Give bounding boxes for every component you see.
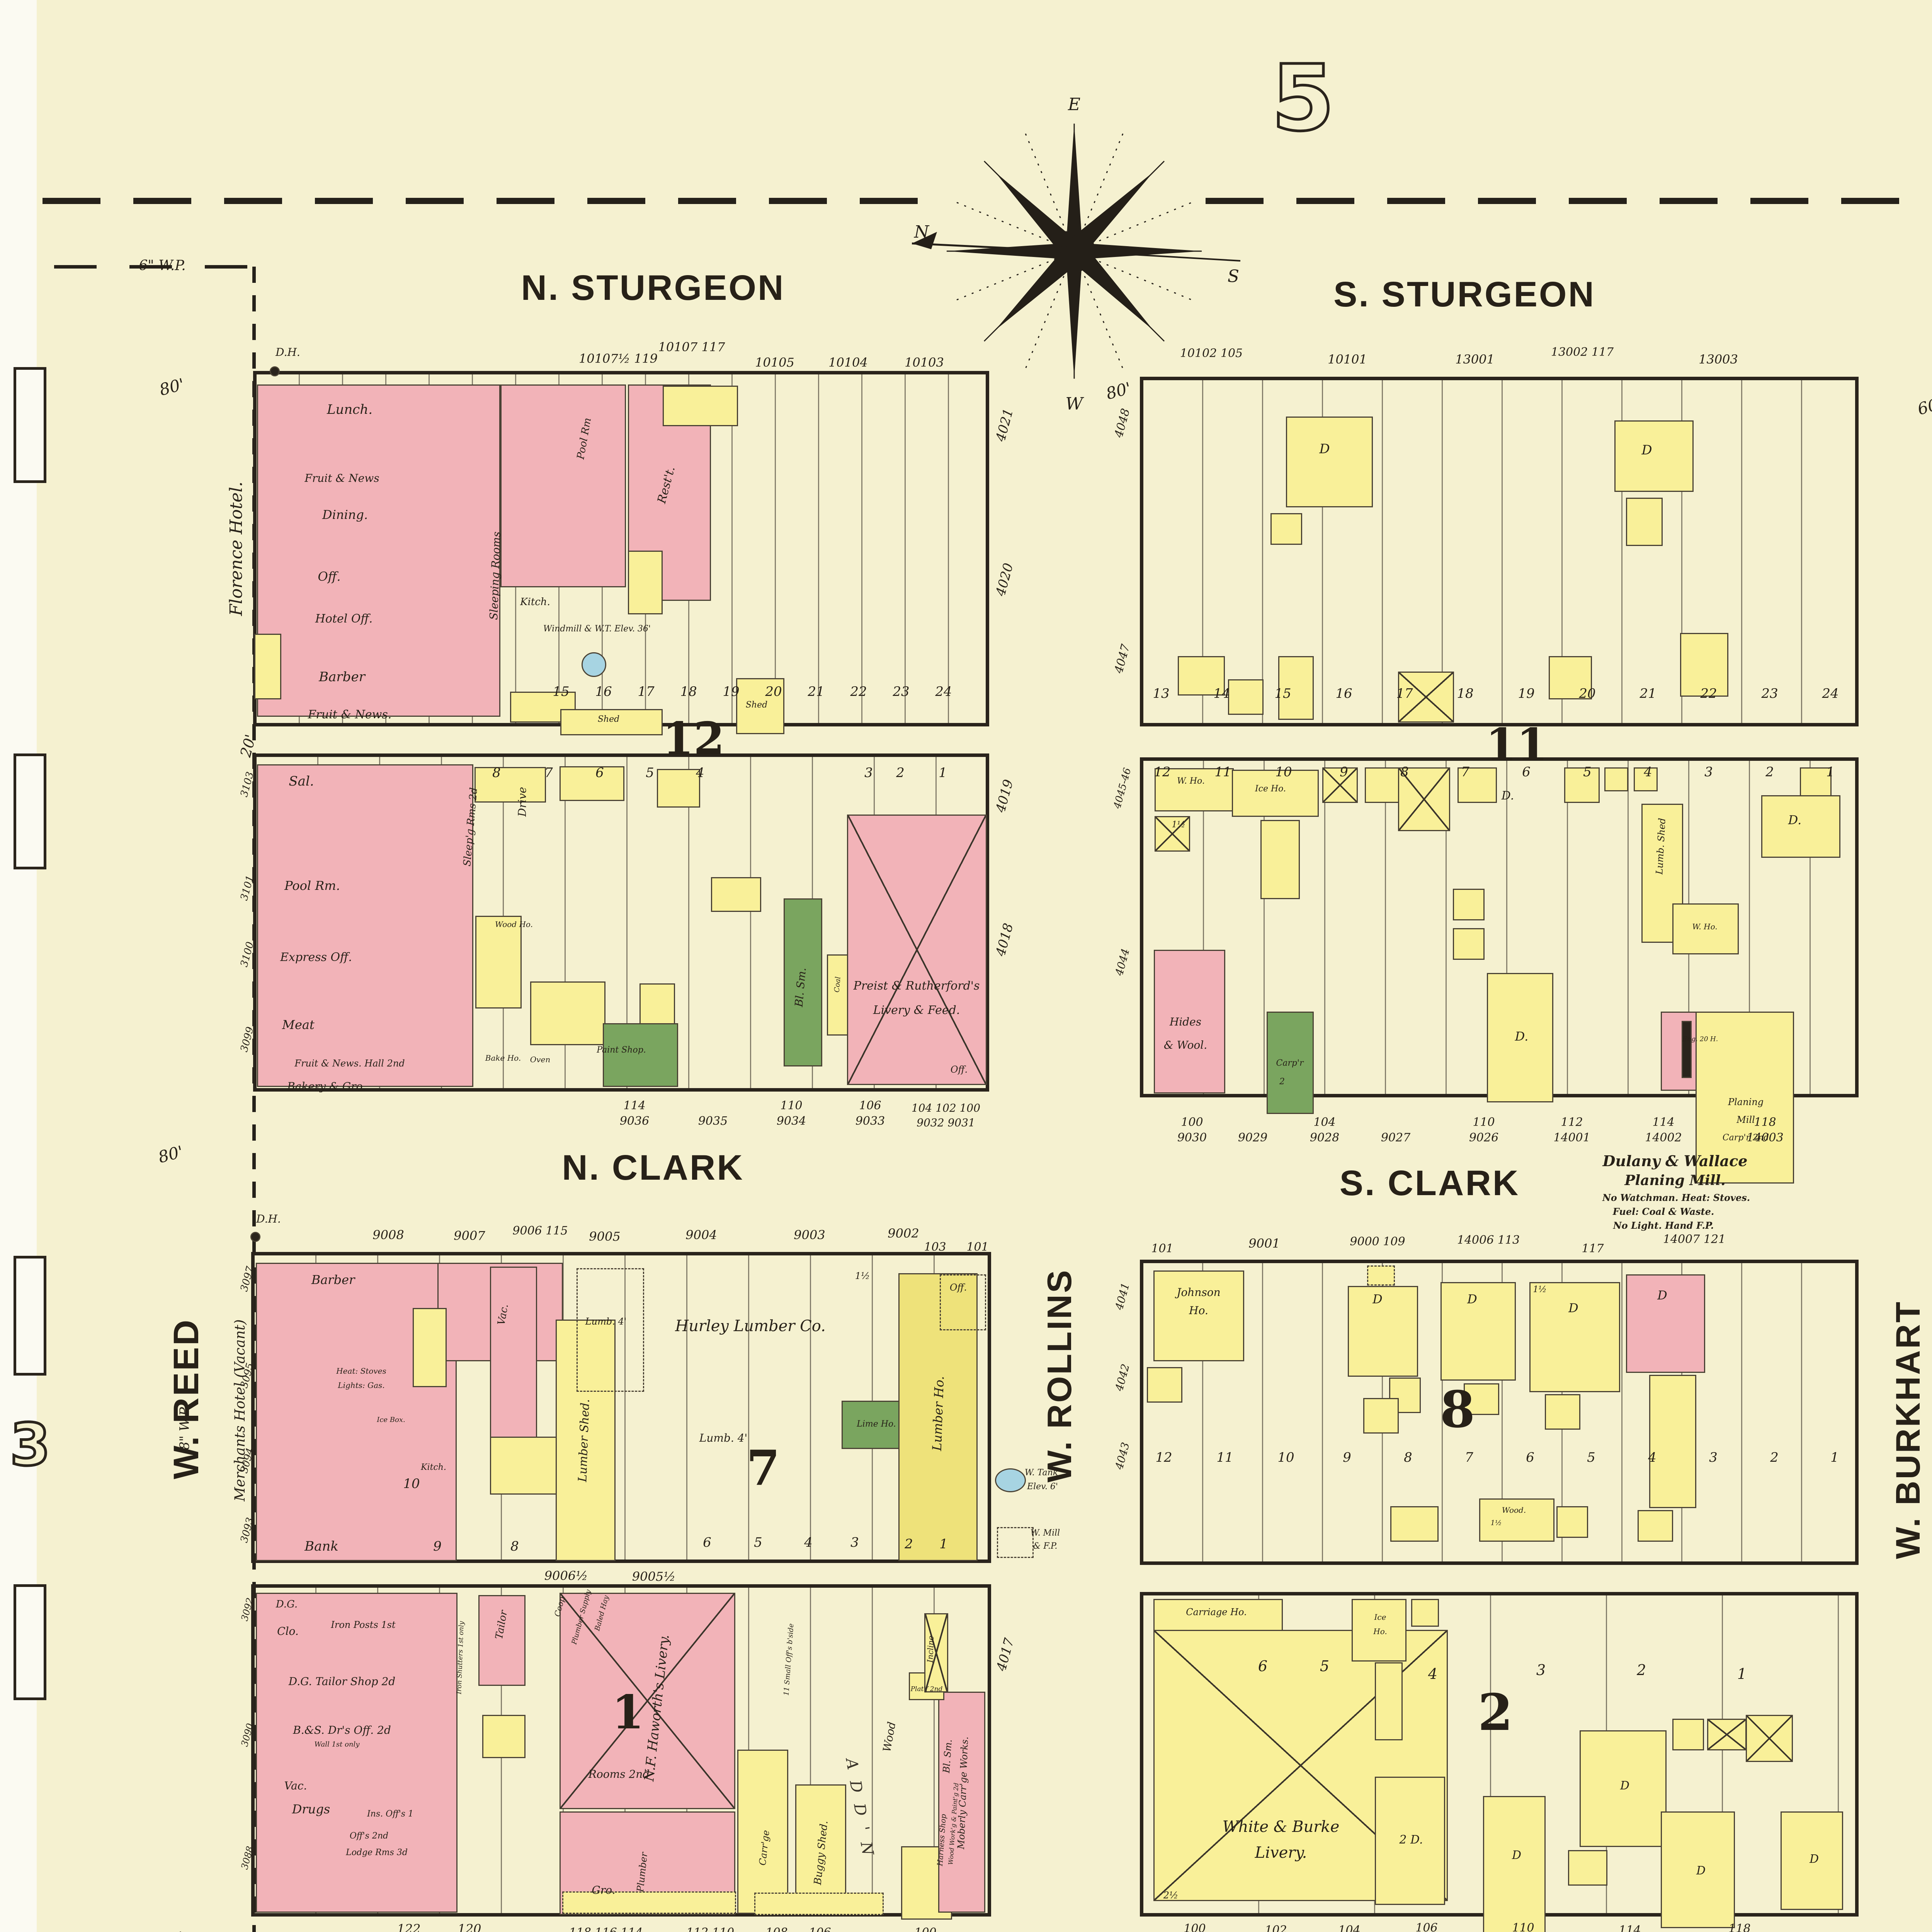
adjacent-block-stub (14, 1256, 46, 1376)
building-label: White & Burke (1223, 1819, 1340, 1835)
building-label: Barber (311, 1274, 355, 1286)
building-label: D. (1515, 1030, 1529, 1043)
street-label: S. CLARK (1340, 1165, 1520, 1201)
address-label: 2 (1637, 1663, 1646, 1677)
block-number: 12 (663, 717, 724, 761)
address-label: 13002 117 (1551, 347, 1614, 358)
building-footprint (1626, 498, 1663, 546)
building-label: 80' (158, 1929, 186, 1932)
address-label: 1 (939, 1537, 948, 1551)
address-label: 1 (1826, 765, 1835, 779)
address-label: 9003 (794, 1229, 825, 1241)
building-label: Lumb. 4' (585, 1317, 627, 1326)
building-label: D (1512, 1850, 1521, 1861)
address-label: 10102 105 (1180, 348, 1243, 359)
address-label: 100 (1184, 1923, 1206, 1932)
address-label: 9034 (777, 1116, 806, 1127)
building-footprint (1367, 1265, 1395, 1286)
building-footprint (256, 1263, 457, 1561)
building-label: Lodge Rms 3d (346, 1849, 408, 1857)
building-footprint (1270, 513, 1302, 545)
building-footprint (562, 1891, 736, 1914)
block-number: 7 (747, 1444, 780, 1493)
map-note: No Watchman. Heat: Stoves. (1602, 1193, 1750, 1202)
address-label: 9007 (454, 1230, 485, 1242)
building-label: Sal. (289, 775, 314, 788)
address-label: 5 (1587, 1451, 1595, 1464)
address-label: 23 (893, 685, 909, 698)
svg-text:S: S (1228, 267, 1239, 286)
address-label: 106 (1415, 1922, 1437, 1932)
address-label: 4018 (994, 922, 1015, 957)
address-label: 2 (1770, 1451, 1779, 1464)
building-footprint (1375, 1662, 1403, 1740)
address-label: 14001 (1553, 1132, 1590, 1144)
address-label: 4017 (995, 1637, 1016, 1672)
building-label: Heat: Stoves (336, 1367, 386, 1375)
building-label: Bank (304, 1540, 338, 1553)
building-footprint (478, 1595, 526, 1686)
address-label: 18 (680, 685, 697, 698)
building-label: Barber (319, 670, 365, 684)
address-label: 2 (896, 766, 905, 779)
address-label: 17 (638, 685, 654, 698)
address-label: 108 (765, 1927, 787, 1932)
building-footprint (270, 366, 280, 376)
svg-text:N: N (914, 222, 930, 242)
address-label: 110 (780, 1100, 802, 1112)
address-label: 9004 (685, 1229, 717, 1241)
building-footprint (1564, 767, 1600, 803)
building-label: Bl. Sm. (794, 967, 808, 1007)
address-label: 9001 (1248, 1237, 1280, 1250)
building-label: D.G. (276, 1599, 298, 1609)
building-label: D (1657, 1289, 1667, 1301)
building-label: Carp'r (1276, 1059, 1303, 1068)
building-label: D. (1502, 790, 1514, 802)
building-footprint (1672, 1719, 1704, 1750)
building-label: 2½ (1163, 1891, 1179, 1900)
building-label: Livery. (1255, 1845, 1307, 1861)
building-footprint (256, 1593, 457, 1913)
building-label: Lights: Gas. (338, 1381, 384, 1389)
building-footprint (711, 877, 761, 912)
building-label: Incline (926, 1636, 935, 1663)
address-label: 9029 (1238, 1132, 1267, 1144)
address-label: 7 (1465, 1451, 1473, 1464)
address-label: 114 (1652, 1117, 1674, 1128)
building-label: D (1810, 1854, 1819, 1865)
address-label: 114 (623, 1100, 645, 1112)
building-label: Wood Ho. (495, 920, 533, 928)
building-footprint (997, 1527, 1034, 1558)
building-label: Windmill & W.T. Elev. 36' (543, 625, 651, 633)
address-label: 13 (1153, 687, 1169, 700)
address-label: 101 (966, 1242, 988, 1253)
building-label: W. Ho. (1692, 923, 1717, 930)
address-label: 10 (403, 1477, 420, 1490)
address-label: 9 (1340, 765, 1348, 779)
address-label: 4043 (1114, 1441, 1131, 1471)
building-footprint (1411, 1599, 1439, 1627)
building-footprint (1614, 420, 1694, 492)
address-label: 16 (595, 685, 612, 698)
address-label: 16 (1335, 687, 1352, 700)
building-label: Hurley Lumber Co. (675, 1318, 826, 1334)
building-footprint (1390, 1506, 1439, 1542)
building-label: Vac. (284, 1781, 307, 1791)
address-label: 6 (1522, 765, 1531, 779)
address-label: 9035 (698, 1116, 728, 1127)
address-label: 4 (1644, 765, 1652, 779)
address-label: 5 (646, 766, 654, 779)
building-footprint (628, 551, 663, 614)
address-label: 9036 (620, 1116, 649, 1127)
address-label: 9 (1343, 1451, 1351, 1464)
building-label: 2 D. (1399, 1834, 1423, 1846)
building-label: Merchants Hotel (Vacant) (233, 1319, 247, 1501)
building-label: Oven (530, 1056, 550, 1063)
address-label: 106 (859, 1100, 881, 1112)
building-label: & F.P. (1033, 1542, 1058, 1551)
building-footprint (482, 1715, 526, 1758)
building-footprint (490, 1267, 537, 1454)
address-label: 122 (397, 1923, 420, 1932)
address-label: 21 (1639, 687, 1656, 700)
building-footprint (1707, 1719, 1747, 1750)
address-label: 13001 (1455, 353, 1495, 366)
address-label: 7 (1461, 765, 1469, 779)
building-footprint (847, 815, 987, 1085)
building-label: Pool Rm. (284, 879, 340, 892)
address-label: 23 (1761, 687, 1778, 700)
building-footprint (1453, 928, 1485, 960)
building-footprint (1363, 1398, 1399, 1434)
building-footprint (530, 981, 605, 1045)
address-label: 112 (1561, 1117, 1583, 1128)
address-label: 10105 (755, 356, 794, 369)
address-label: 110 (1512, 1922, 1534, 1932)
address-label: 5 (1583, 765, 1592, 779)
address-label: 24 (1822, 687, 1838, 700)
address-label: 6 (1258, 1659, 1267, 1673)
top-boundary-dashed-line (43, 198, 943, 204)
building-label: D.H. (256, 1214, 281, 1225)
address-label: 11 (1216, 1451, 1233, 1464)
building-footprint (474, 767, 546, 803)
map-note: No Light. Hand F.P. (1613, 1221, 1714, 1230)
address-label: 10103 (905, 356, 944, 369)
block-number: 8 (1440, 1384, 1475, 1435)
address-label: 6 (595, 766, 604, 779)
address-label: 4042 (1114, 1363, 1131, 1392)
building-label: Wall 1st only (315, 1741, 360, 1748)
address-label: 4020 (994, 562, 1015, 597)
building-label: Drive (517, 787, 528, 816)
building-label: Gro. (592, 1885, 615, 1896)
street-label: W. ROLLINS (1043, 1269, 1077, 1482)
address-label: 8 (510, 1540, 519, 1553)
building-label: Shed (598, 715, 619, 724)
address-label: 106 (809, 1927, 831, 1932)
building-label: Off. (950, 1283, 967, 1292)
address-label: 14002 (1645, 1132, 1682, 1144)
building-label: Drugs (292, 1803, 330, 1815)
svg-text:E: E (1068, 95, 1080, 114)
address-label: 4044 (1114, 947, 1131, 977)
building-label: Fruit & News. (308, 709, 392, 721)
building-footprint (1147, 1367, 1182, 1403)
address-label: 19 (1518, 687, 1534, 700)
building-label: Livery & Feed. (873, 1005, 960, 1016)
building-footprint (1682, 1021, 1692, 1078)
sheet-reference-number: 3 (10, 1416, 50, 1474)
address-label: 24 (935, 685, 952, 698)
building-footprint (250, 1232, 260, 1242)
building-label: Fruit & News (304, 473, 379, 484)
building-footprint (1604, 767, 1628, 791)
address-label: 9028 (1310, 1132, 1339, 1144)
building-label: Kitch. (520, 597, 550, 607)
address-label: 9030 (1177, 1132, 1207, 1144)
address-label: 8 (1404, 1451, 1412, 1464)
building-label: D (1568, 1302, 1578, 1314)
address-label: 4047 (1113, 643, 1132, 675)
building-label: Lumber Shed. (577, 1399, 591, 1482)
address-label: 14003 (1747, 1132, 1783, 1144)
street-label: S. STURGEON (1333, 277, 1595, 312)
address-label: 4 (696, 766, 704, 779)
address-label: 19 (723, 685, 739, 698)
address-label: 110 (1473, 1117, 1495, 1128)
building-label: W. Mill (1031, 1529, 1060, 1537)
address-label: 100 (1181, 1117, 1203, 1128)
address-label: 17 (1396, 687, 1413, 700)
address-label: 9005½ (632, 1570, 675, 1583)
building-label: Bl. Sm. (942, 1739, 953, 1774)
address-label: 9032 9031 (917, 1117, 975, 1128)
address-label: 1 (1830, 1451, 1839, 1464)
sanborn-map-sheet: 5 2 Oct. 1893 MOBERLY MO. (0, 0, 1932, 1932)
building-label: 1½ (855, 1271, 870, 1281)
address-label: 10104 (828, 356, 868, 369)
street-label: N. STURGEON (521, 270, 785, 306)
address-label: 22 (850, 685, 867, 698)
building-footprint (413, 1308, 447, 1387)
adjacent-block-stub (14, 753, 46, 869)
building-label: Ice Box. (377, 1417, 405, 1423)
map-note: Planing Mill. (1624, 1173, 1725, 1187)
address-label: 120 (457, 1923, 481, 1932)
building-footprint (582, 652, 606, 677)
building-footprint (1746, 1715, 1793, 1762)
building-label: 60' (1916, 395, 1932, 417)
building-label: D.H. (276, 347, 300, 358)
building-label: Eng. 20 H. (1682, 1036, 1718, 1043)
building-label: 2 (1279, 1078, 1285, 1086)
address-label: 4 (1648, 1451, 1656, 1464)
building-label: Planing (1728, 1097, 1764, 1107)
street-label: W. BURKHART (1891, 1300, 1925, 1559)
address-label: 9006½ (544, 1570, 588, 1582)
address-label: 9005 (589, 1230, 620, 1243)
address-label: 1 (1737, 1667, 1747, 1681)
building-label: Fruit & News. Hall 2nd (294, 1059, 405, 1068)
address-label: 22 (1700, 687, 1717, 700)
building-label: Lumber Ho. (931, 1376, 946, 1451)
building-label: Mill (1736, 1115, 1755, 1124)
building-footprint (663, 386, 738, 426)
building-footprint (1556, 1506, 1588, 1538)
address-label: 104 102 100 (912, 1103, 980, 1114)
building-footprint (827, 954, 848, 1036)
address-label: 13003 (1699, 353, 1738, 366)
address-label: 7 (544, 766, 553, 779)
block-number: 2 (1478, 1687, 1513, 1738)
address-label: 102 (1265, 1925, 1287, 1932)
address-label: 2 (1765, 765, 1774, 779)
city-block (1140, 377, 1859, 726)
street-label: W. REED (168, 1318, 204, 1479)
address-label: 8 (492, 766, 501, 779)
address-label: 4045-46 (1112, 767, 1133, 810)
address-label: 10 (1277, 1451, 1294, 1464)
address-label: 100 (914, 1927, 936, 1932)
building-label: Carriage Ho. (1186, 1607, 1247, 1617)
building-label: Ins. Off's 1 (367, 1810, 413, 1818)
address-label: 101 (1151, 1243, 1173, 1255)
address-label: 5 (754, 1536, 762, 1549)
building-label: 8" W.P. (178, 1406, 191, 1450)
building-label: Meat (282, 1019, 315, 1031)
top-boundary-dashed-line (1206, 198, 1932, 204)
building-label: 1½ (1533, 1286, 1546, 1294)
building-label: 80' (156, 1143, 185, 1165)
building-label: Dining. (322, 509, 368, 521)
address-label: 6 (703, 1536, 711, 1549)
building-label: Lime Ho. (857, 1420, 896, 1429)
building-label: Lumb. 4' (699, 1433, 747, 1444)
address-label: 20 (1579, 687, 1595, 700)
building-label: D (1467, 1293, 1477, 1305)
building-label: Ho. (1373, 1628, 1387, 1635)
building-label: Rooms 2nd (588, 1769, 650, 1780)
building-footprint (257, 384, 500, 717)
building-label: W. Tank (1025, 1469, 1058, 1477)
address-label: 3 (864, 766, 873, 779)
building-label: Hotel Off. (315, 613, 373, 625)
building-label: D (1696, 1865, 1706, 1877)
address-label: 9 (433, 1540, 442, 1553)
building-label: Ho. (1189, 1305, 1208, 1316)
building-label: Hides (1170, 1017, 1201, 1027)
block-number: 1 (612, 1689, 644, 1736)
address-label: 9006 115 (512, 1225, 568, 1237)
building-label: Lumb. Shed (1655, 818, 1667, 874)
building-label: D (1641, 444, 1652, 457)
building-label: Elev. 6' (1027, 1483, 1058, 1491)
building-label: Bakery & Gro. (287, 1081, 366, 1092)
address-label: 2 (905, 1537, 913, 1551)
building-label: Plat'f 2nd (911, 1686, 943, 1693)
map-note: Dulany & Wallace (1603, 1154, 1748, 1168)
block-number: 11 (1486, 723, 1548, 767)
building-footprint (1228, 679, 1264, 715)
address-label: 118 (1754, 1117, 1776, 1128)
address-label: 4041 (1114, 1282, 1131, 1311)
building-footprint (1348, 1286, 1418, 1377)
building-label: 80' (158, 376, 186, 398)
building-label: Off. (318, 570, 340, 583)
address-label: 4 (804, 1536, 813, 1549)
building-footprint (1568, 1850, 1607, 1886)
building-label: Off's 2nd (350, 1832, 388, 1840)
address-label: 14006 113 (1457, 1235, 1520, 1246)
building-label: Ice Ho. (1255, 785, 1286, 793)
building-label: Ice (1374, 1613, 1386, 1621)
address-label: 9026 (1469, 1132, 1498, 1144)
address-label: 8 (1400, 765, 1409, 779)
building-label: D (1372, 1293, 1383, 1305)
building-label: Preist & Rutherford's (854, 980, 980, 992)
address-label: 6 (1526, 1451, 1534, 1464)
building-label: Bake Ho. (485, 1054, 521, 1062)
building-label: Iron Posts 1st (331, 1620, 395, 1629)
building-label: B.&S. Dr's Off. 2d (293, 1725, 391, 1736)
building-footprint (1649, 1375, 1696, 1508)
address-label: 15 (553, 685, 569, 698)
building-footprint (657, 769, 700, 808)
building-footprint (1483, 1796, 1546, 1932)
address-label: 103 (924, 1242, 946, 1253)
address-label: 9000 109 (1350, 1236, 1405, 1248)
address-label: 12 (1155, 1451, 1172, 1464)
address-label: 9027 (1381, 1132, 1410, 1144)
svg-text:W: W (1065, 394, 1084, 414)
building-footprint (1440, 1282, 1516, 1381)
address-label: 12 (1154, 765, 1170, 779)
address-label: 3 (850, 1536, 859, 1549)
building-label: Off. (951, 1065, 968, 1074)
building-footprint (1286, 417, 1373, 507)
address-label: 10107 117 (658, 341, 725, 353)
address-label: 3 (1536, 1663, 1546, 1677)
street-label: N. CLARK (562, 1150, 744, 1185)
building-label: Sleeping Rooms (488, 531, 502, 620)
sheet-number-top: 5 (1271, 53, 1335, 144)
building-label: Express Off. (280, 952, 352, 963)
address-label: 10107½ 119 (579, 352, 658, 365)
building-footprint (1529, 1282, 1620, 1392)
building-label: Kitch. (421, 1463, 446, 1472)
building-label: D. (1788, 814, 1802, 826)
address-label: 9033 (855, 1116, 885, 1127)
building-footprint (257, 764, 473, 1087)
address-label: 4 (1428, 1667, 1437, 1681)
building-footprint (1453, 889, 1485, 920)
address-label: 14007 121 (1663, 1234, 1726, 1245)
building-footprint (995, 1468, 1026, 1492)
building-label: Clo. (277, 1626, 299, 1637)
address-label: 9002 (888, 1227, 919, 1240)
address-label: 21 (808, 685, 824, 698)
building-label: & Wool. (1164, 1040, 1207, 1051)
building-label: 1½ (1172, 821, 1185, 829)
address-label: 10101 (1328, 353, 1367, 366)
address-label: 5 (1320, 1659, 1329, 1673)
building-label: Shed (746, 701, 767, 709)
address-label: 114 (1619, 1925, 1641, 1932)
